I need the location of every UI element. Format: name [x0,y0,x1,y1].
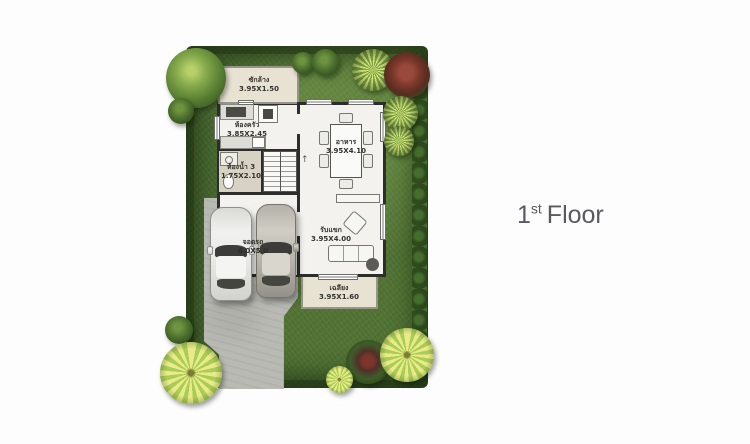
room-size: 3.95X1.60 [319,293,359,302]
stairs [263,151,297,192]
floor-word: Floor [547,201,604,229]
kitchen-sink [226,107,246,117]
window [380,204,386,240]
room-size: 3.95X4.00 [311,235,351,244]
room-size: 6.0X5.0 [238,247,268,256]
room-name: ห้องน้ำ 3 [221,163,261,172]
washing-machine-drum [263,109,273,119]
wall [297,102,300,114]
window [214,116,220,140]
room-label-porch: เฉลียง 3.95X1.60 [319,284,359,303]
floor-plan-page: ↑ ซักล้าง 3.95X1.50 ห้องครัว 3.85X2.45 [0,0,750,444]
window [306,99,332,105]
room-label-bathroom: ห้องน้ำ 3 1.75X2.10 [221,163,261,182]
palm-tree-icon [384,126,414,156]
bush-icon [312,49,339,76]
side-table-icon [366,258,379,271]
laundry-door [238,100,254,105]
yellow-tree-icon [380,328,434,382]
room-size: 3.85X2.45 [227,130,267,139]
chair-icon [339,113,353,123]
chair-icon [339,179,353,189]
porch-door [318,274,358,280]
room-name: จอดรถ [238,238,268,247]
floor-number: 1 [517,201,531,229]
window [348,99,374,105]
wall [297,194,300,212]
wall [297,134,300,194]
room-label-living: รับแขก 3.95X4.00 [311,226,351,245]
floor-ordinal: st [531,201,542,217]
room-name: ซักล้าง [239,76,279,85]
room-size: 3.95X1.50 [239,85,279,94]
yellow-bush-icon [326,366,353,393]
car-roof [216,256,246,278]
wall [217,192,300,195]
yellow-tree-icon [160,342,222,404]
room-size: 3.95X4.10 [326,147,366,156]
room-label-laundry: ซักล้าง 3.95X1.50 [239,76,279,95]
room-size: 1.75X2.10 [221,172,261,181]
stairs-up-arrow-icon: ↑ [301,155,309,165]
room-name: รับแขก [311,226,351,235]
room-name: เฉลียง [319,284,359,293]
bush-icon [168,98,194,124]
sideboard [336,194,380,203]
room-label-kitchen: ห้องครัว 3.85X2.45 [227,121,267,140]
car-rear-window [217,279,246,289]
wall [261,149,263,194]
floor-title: 1stFloor [517,201,604,230]
bush-icon [165,316,193,344]
bush-icon [292,52,314,74]
room-name: อาหาร [326,138,366,147]
room-name: ห้องครัว [227,121,267,130]
room-label-parking: จอดรถ 6.0X5.0 [238,238,268,257]
room-label-dining: อาหาร 3.95X4.10 [326,138,366,157]
red-tree-icon [384,52,430,98]
wall [217,149,299,151]
car-rear-window [262,276,289,286]
